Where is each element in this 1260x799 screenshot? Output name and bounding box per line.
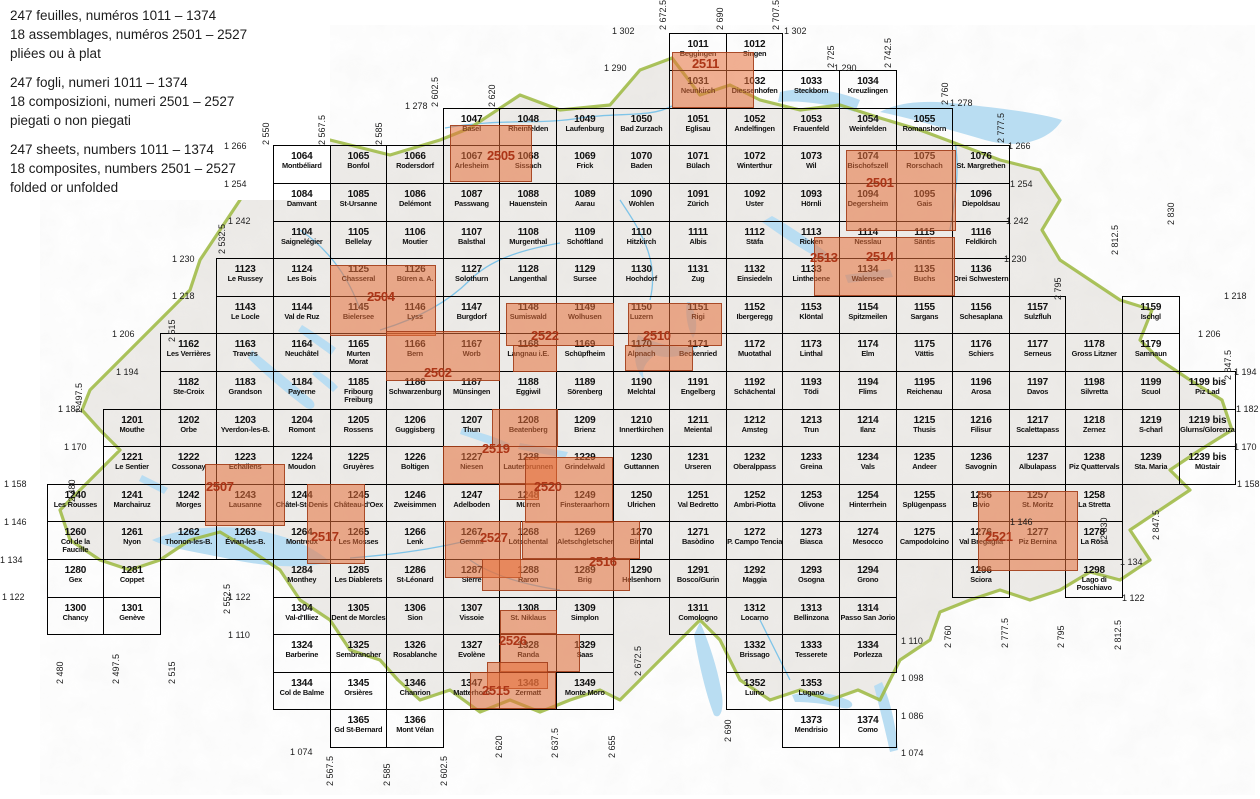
sheet-name: Weinfelden [840,125,896,133]
sheet-name: Val-d'Illiez [274,614,330,622]
map-sheet-cell: 1127Solothurn [443,258,501,297]
map-sheet-cell: 1334Porlezza [839,634,897,673]
map-sheet-cell: 1106Moutier [386,221,444,260]
sheet-name: Diepoldsau [953,200,1009,208]
sheet-name: Silvretta [1066,388,1122,396]
sheet-name: Drei Schwestern [953,275,1009,283]
sheet-number: 1104 [274,227,330,238]
composite-number: 2515 [482,684,510,697]
sheet-name: Brienz [557,426,613,434]
northing-label: 1 122 [1122,594,1145,603]
sheet-name: Guggisberg [387,426,443,434]
map-sheet-cell: 1225Gruyères [330,446,388,485]
sheet-name: Les Bois [274,275,330,283]
map-sheet-cell: 1110Hitzkirch [613,221,671,260]
sheet-name: Col de Balme [274,689,330,697]
map-sheet-cell: 1314Passo San Jorio [839,597,897,636]
composite-number: 2513 [810,251,838,264]
sheet-name: Münsingen [444,388,500,396]
sheet-name: Dent de Morcles [331,614,387,622]
map-sheet-cell: 1252Ambri-Piotta [726,484,784,523]
sheet-name: Thusis [897,426,953,434]
sheet-name: Muotathal [727,350,783,358]
legend-fr-line3: pliées ou à plat [10,46,101,61]
map-sheet-cell: 1213Trun [782,409,840,448]
legend-fr-line2: 18 assemblages, numéros 2501 – 2527 [10,27,247,42]
map-sheet-cell: 1193Tödi [782,371,840,410]
easting-label: 2 847.5 [1152,510,1161,540]
northing-label: 1 290 [604,64,627,73]
map-sheet-cell: 1206Guggisberg [386,409,444,448]
sheet-name: Gd St-Bernard [331,726,387,734]
map-sheet-cell: 1306Sion [386,597,444,636]
map-sheet-cell: 1109Schöftland [556,221,614,260]
composite-number: 2507 [206,480,234,493]
sheet-number: 1309 [557,603,613,614]
easting-label: 2 690 [716,7,725,30]
sheet-name: Saignelégier [274,238,330,246]
map-sheet-cell: 1345Orsières [330,672,388,711]
easting-label: 2 620 [488,84,497,107]
composite-number: 2514 [866,250,894,263]
sheet-number: 1012 [727,39,783,50]
map-sheet-cell: 1033Steckborn [782,70,840,109]
legend-it-line1: 247 fogli, numeri 1011 – 1374 [10,75,188,90]
map-sheet-cell: 1373Mendrisio [782,709,840,748]
sheet-number: 1306 [387,603,443,614]
northing-label: 1 134 [0,556,23,565]
map-sheet-cell: 1164Neuchâtel [273,333,331,372]
map-sheet-cell: 1055Romanshorn [896,108,954,147]
sheet-name: Burgdorf [444,313,500,321]
easting-label: 2 480 [56,661,65,684]
sheet-name: Tödi [783,388,839,396]
legend-en-line1: 247 sheets, numbers 1011 – 1374 [10,142,214,157]
sheet-name: Andelfingen [727,125,783,133]
map-sheet-cell: 1344Col de Balme [273,672,331,711]
map-sheet-cell: 1163Travers [216,333,274,372]
sheet-name: Murten Morat [331,350,387,366]
sheet-name: Ambri-Piotta [727,501,783,509]
sheet-name: Uster [727,200,783,208]
map-sheet-cell: 1085St-Ursanne [330,183,388,222]
northing-label: 1 074 [290,748,313,757]
easting-label: 2 725 [827,45,836,68]
sheet-number: 1116 [953,227,1009,238]
map-sheet-cell: 1261Nyon [103,521,161,560]
sheet-name: Vals [840,463,896,471]
map-sheet-cell: 1304Val-d'Illiez [273,597,331,636]
easting-label: 2 707.5 [772,0,781,30]
composite-area-2522 [506,303,614,346]
northing-label: 1 182 [1236,405,1259,414]
map-sheet-cell: 1374Como [839,709,897,748]
legend-it-line2: 18 composizioni, numeri 2501 – 2527 [10,94,234,109]
easting-label: 2 567.5 [326,756,335,786]
sheet-name: Greina [783,463,839,471]
map-sheet-cell: 1175Vättis [896,333,954,372]
sheet-name: Hochdorf [614,275,670,283]
sheet-name: Einsiedeln [727,275,783,283]
sheet-name: Amsteg [727,426,783,434]
easting-label: 2 552.5 [223,584,232,614]
easting-label: 2 515 [168,661,177,684]
northing-label: 1 098 [901,674,924,683]
map-sheet-cell: 1246Zweisimmen [386,484,444,523]
map-sheet-cell: 1054Weinfelden [839,108,897,147]
sheet-name: Trun [783,426,839,434]
sheet-name: St-Léonard [387,576,443,584]
map-sheet-cell: 1188Eggiwil [499,371,557,410]
map-sheet-cell: 1183Grandson [216,371,274,410]
map-sheet-cell: 1294Grono [839,559,897,598]
composite-number: 2504 [367,290,395,303]
map-sheet-cell: 1255Splügenpass [896,484,954,523]
map-sheet-cell: 1353Lugano [782,672,840,711]
sheet-name: Boltigen [387,463,443,471]
map-sheet-cell: 1190Melchtal [613,371,671,410]
sheet-name: Monthey [274,576,330,584]
sheet-name: Zweisimmen [387,501,443,509]
composite-number: 2526 [499,634,527,647]
sheet-name: Baden [614,162,670,170]
map-sheet-cell: 1182Ste-Croix [160,371,218,410]
map-sheet-cell: 1218Zernez [1065,409,1123,448]
map-sheet-cell: 1205Rossens [330,409,388,448]
sheet-name: Évian-les-B. [217,538,273,546]
sheet-name: Balsthal [444,238,500,246]
sheet-name: Passo San Jorio [840,614,896,622]
composite-area-2510 [625,345,693,371]
map-sheet-cell: 1239Sta. Maria [1122,446,1180,485]
sheet-name: Grandson [217,388,273,396]
sheet-name: Davos [1010,388,1066,396]
northing-label: 1 206 [112,330,135,339]
map-sheet-cell: 1201Mouthe [103,409,161,448]
easting-label: 2 620 [495,735,504,758]
composite-number: 2519 [482,442,510,455]
sheet-name: Chanrion [387,689,443,697]
sheet-name: Hörnli [783,200,839,208]
easting-label: 2 847.5 [1224,350,1233,380]
map-sheet-cell: 1365Gd St-Bernard [330,709,388,748]
sheet-name: Sörenberg [557,388,613,396]
sheet-name: Albis [670,238,726,246]
sheet-name: Glurns/Glorenza [1180,426,1236,434]
map-sheet-cell: 1293Osogna [782,559,840,598]
map-sheet-cell: 1234Vals [839,446,897,485]
sheet-name: Rosablanche [387,651,443,659]
sheet-number: 1105 [331,227,387,238]
easting-label: 2 602.5 [440,756,449,786]
map-sheet-cell: 1284Monthey [273,559,331,598]
map-sheet-cell: 1128Langenthal [499,258,557,297]
sheet-name: Orbe [161,426,217,434]
easting-label: 2 812.5 [1114,620,1123,650]
map-sheet-cell: 1050Bad Zurzach [613,108,671,147]
sheet-number: 1305 [331,603,387,614]
northing-label: 1 218 [1224,292,1247,301]
sheet-name: Arosa [953,388,1009,396]
sheet-name: Melchtal [614,388,670,396]
northing-label: 1 158 [1237,480,1260,489]
map-sheet-cell: 1173Linthal [782,333,840,372]
sheet-name: Ilanz [840,426,896,434]
map-sheet-cell: 1202Orbe [160,409,218,448]
composite-number: 2502 [424,366,452,379]
sheet-name: Bellelay [331,238,387,246]
sheet-name: Val de Ruz [274,313,330,321]
sheet-name: Lugano [783,689,839,697]
sheet-name: Schöftland [557,238,613,246]
sheet-name: Fribourg Freiburg [331,388,387,404]
composite-area-2513 [814,237,955,296]
map-sheet-cell: 1349Monte Moro [556,672,614,711]
sheet-number: 1206 [387,415,443,426]
sheet-name: P. Campo Tencia [727,538,783,546]
map-sheet-cell: 1174Elm [839,333,897,372]
sheet-number: 1217 [1010,415,1066,426]
sheet-name: Engelberg [670,388,726,396]
map-sheet-cell: 1250Ulrichen [613,484,671,523]
composite-number: 2522 [531,329,559,342]
map-sheet-cell: 1305Dent de Morcles [330,597,388,636]
sheet-number: 1107 [444,227,500,238]
map-sheet-cell: 1203Yverdon-les-B. [216,409,274,448]
map-sheet-cell: 1177Serneus [1009,333,1067,372]
map-sheet-cell: 1260Col de la Faucille [47,521,105,560]
sheet-number: 1300 [48,603,104,614]
map-sheet-cell: 1111Albis [669,221,727,260]
map-sheet-cell: 1088Hauenstein [499,183,557,222]
map-sheet-cell: 1092Uster [726,183,784,222]
easting-label: 2 672.5 [634,646,643,676]
sheet-name: Frauenfeld [783,125,839,133]
sheet-name: Olivone [783,501,839,509]
sheet-number: 1201 [104,415,160,426]
map-sheet-cell: 1053Frauenfeld [782,108,840,147]
easting-label: 2 567.5 [318,115,327,145]
map-sheet-cell: 1132Einsiedeln [726,258,784,297]
map-sheet-cell: 1211Meiental [669,409,727,448]
sheet-name: Hinterrhein [840,501,896,509]
northing-label: 1 278 [950,99,973,108]
sheet-name: Scuol [1123,388,1179,396]
sheet-name: St. Margrethen [953,162,1009,170]
map-sheet-cell: 1324Barberine [273,634,331,673]
map-sheet-cell: 1052Andelfingen [726,108,784,147]
sheet-name: Sembrancher [331,651,387,659]
sheet-name: Bellinzona [783,614,839,622]
sheet-name: Osogna [783,576,839,584]
sheet-name: Nyon [104,538,160,546]
sheet-name: Piz Quattervals [1066,463,1122,471]
sheet-name: Yverdon-les-B. [217,426,273,434]
sheet-name: Gex [48,576,104,584]
northing-label: 1 146 [1010,518,1033,527]
sheet-name: Sciora [953,576,1009,584]
sheet-name: Oberalppass [727,463,783,471]
map-sheet-cell: 1212Amsteg [726,409,784,448]
sheet-number: 1106 [387,227,443,238]
easting-label: 2 812.5 [1111,225,1120,255]
sheet-name: Stäfa [727,238,783,246]
sheet-name: Wil [783,162,839,170]
sheet-name: St-Ursanne [331,200,387,208]
map-sheet-cell: 1071Bülach [669,145,727,184]
map-sheet-cell: 1136Drei Schwestern [952,258,1010,297]
sheet-number: 1218 [1066,415,1122,426]
sheet-name: Winterthur [727,162,783,170]
sheet-name: Eglisau [670,125,726,133]
sheet-name: Mesocco [840,538,896,546]
composite-number: 2527 [480,531,508,544]
map-sheet-cell: 1131Zug [669,258,727,297]
map-sheet-cell: 1346Chanrion [386,672,444,711]
easting-label: 2 830 [1167,202,1176,225]
sheet-name: Linthal [783,350,839,358]
sheet-number: 1311 [670,603,726,614]
map-sheet-cell: 1155Sargans [896,296,954,335]
map-sheet-cell: 1129Sursee [556,258,614,297]
sheet-name: Sta. Maria [1123,463,1179,471]
sheet-name: Zernez [1066,426,1122,434]
sheet-name: Maggia [727,576,783,584]
northing-label: 1 086 [901,712,924,721]
map-sheet-cell: 1105Bellelay [330,221,388,260]
sheet-name: Guttannen [614,463,670,471]
sheet-name: Splügenpass [897,501,953,509]
sheet-name: Col de la Faucille [48,538,104,554]
sheet-name: Le Locle [217,313,273,321]
sheet-name: Payerne [274,388,330,396]
map-sheet-cell: 1112Stäfa [726,221,784,260]
northing-label: 1 302 [784,27,807,36]
map-sheet-cell: 1194Flims [839,371,897,410]
sheet-name: Piz Lad [1180,388,1236,396]
easting-label: 2 497.5 [75,383,84,413]
sheet-name: Comologno [670,614,726,622]
northing-label: 1 266 [1008,142,1031,151]
map-sheet-cell: 1281Coppet [103,559,161,598]
sheet-name: Le Sentier [104,463,160,471]
northing-label: 1 230 [1004,255,1027,264]
sheet-name: Schesaplana [953,313,1009,321]
northing-label: 1 158 [4,480,27,489]
map-sheet-cell: 1034Kreuzlingen [839,70,897,109]
northing-label: 1 134 [1120,558,1143,567]
map-sheet-cell: 1116Feldkirch [952,221,1010,260]
map-sheet-cell: 1241Marchairuz [103,484,161,523]
map-sheet-cell: 1366Mont Vélan [386,709,444,748]
map-sheet-cell: 1262Thonon-les-B. [160,521,218,560]
sheet-name: Romont [274,426,330,434]
map-sheet-cell: 1272P. Campo Tencia [726,521,784,560]
map-sheet-cell: 1253Olivone [782,484,840,523]
map-sheet-cell: 1254Hinterrhein [839,484,897,523]
easting-label: 2 795 [1054,277,1063,300]
map-sheet-cell: 1273Biasca [782,521,840,560]
sheet-name: Zürich [670,200,726,208]
map-sheet-cell: 1239 bisMüstair [1179,446,1237,485]
sheet-name: Samnaun [1123,350,1179,358]
northing-label: 1 266 [224,142,247,151]
map-sheet-cell: 1352Luino [726,672,784,711]
sheet-name: Sulzfluh [1010,313,1066,321]
sheet-number: 1203 [217,415,273,426]
map-sheet-cell: 1214Ilanz [839,409,897,448]
sheet-number: 1301 [104,603,160,614]
northing-label: 1 218 [172,292,195,301]
map-sheet-cell: 1271Basòdino [669,521,727,560]
legend-en-line3: folded or unfolded [10,180,118,195]
easting-label: 2 830 [1100,517,1109,540]
sheet-name: Basòdino [670,538,726,546]
sheet-name: Gross Litzner [1066,350,1122,358]
composite-number: 2520 [534,480,562,493]
composite-area-2501 [846,150,956,231]
northing-label: 1 302 [612,27,635,36]
sheet-name: Orsières [331,689,387,697]
sheet-name: Rossens [331,426,387,434]
map-sheet-cell: 1219S-charl [1122,409,1180,448]
map-sheet-cell: 1309Simplon [556,597,614,636]
sheet-name: Flims [840,388,896,396]
map-sheet-cell: 1184Payerne [273,371,331,410]
map-sheet-cell: 1192Schächental [726,371,784,410]
sheet-name: Ste-Croix [161,388,217,396]
easting-label: 2 550 [262,122,271,145]
easting-label: 2 602.5 [431,77,440,107]
map-sheet-cell: 1251Val Bedretto [669,484,727,523]
sheet-name: Tesserete [783,651,839,659]
sheet-name: Evolène [444,651,500,659]
map-sheet-cell: 1154Spitzmeilen [839,296,897,335]
map-sheet-cell: 1165Murten Morat [330,333,388,372]
map-sheet-cell: 1326Rosablanche [386,634,444,673]
easting-label: 2 637.5 [551,728,560,758]
map-sheet-cell: 1235Andeer [896,446,954,485]
easting-label: 2 795 [1057,625,1066,648]
sheet-number: 1112 [727,227,783,238]
northing-label: 1 074 [901,749,924,758]
map-index-page: 247 feuilles, numéros 1011 – 1374 18 ass… [0,0,1260,799]
map-sheet-cell: 1159Ischgl [1122,296,1180,335]
composite-area-2522 [513,345,557,372]
sheet-name: Kreuzlingen [840,87,896,95]
sheet-name: Vissoie [444,614,500,622]
easting-label: 2 532.5 [218,224,227,254]
sheet-name: Damvant [274,200,330,208]
map-sheet-cell: 1179Samnaun [1122,333,1180,372]
map-sheet-cell: 1292Maggia [726,559,784,598]
map-sheet-cell: 1073Wil [782,145,840,184]
sheet-name: Montbéliard [274,162,330,170]
sheet-name: Bülach [670,162,726,170]
sheet-name: Luino [727,689,783,697]
map-sheet-cell: 1231Urseren [669,446,727,485]
sheet-name: Langenthal [500,275,556,283]
sheet-name: Bosco/Gurin [670,576,726,584]
sheet-number: 1307 [444,603,500,614]
map-sheet-cell: 1196Arosa [952,371,1010,410]
sheet-name: Schiers [953,350,1009,358]
map-sheet-cell: 1130Hochdorf [613,258,671,297]
easting-label: 2 672.5 [659,0,668,30]
map-sheet-cell: 1325Sembrancher [330,634,388,673]
sheet-name: Lenk [387,538,443,546]
sheet-name: Scalettapass [1010,426,1066,434]
